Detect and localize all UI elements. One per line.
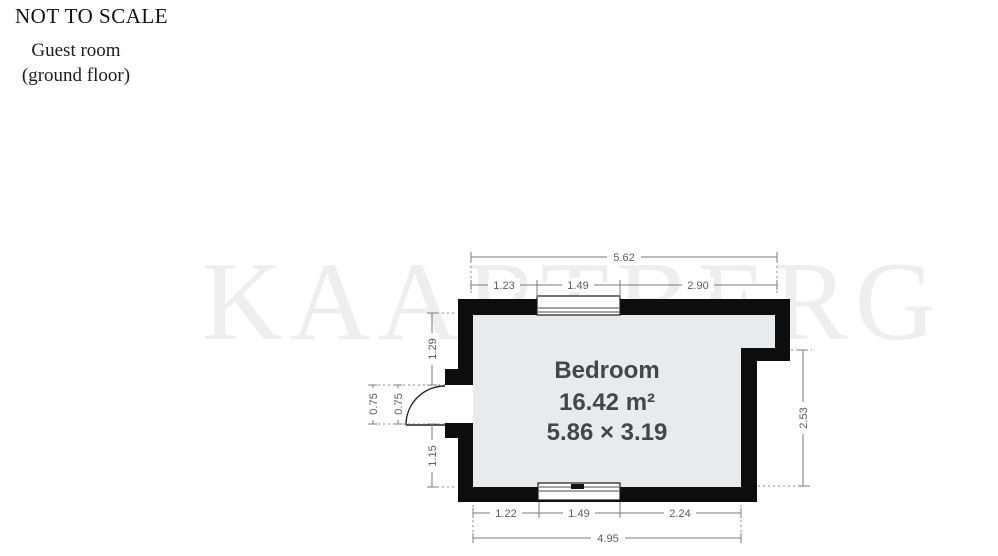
dim-label-top-seg2: 1.49 xyxy=(567,280,588,292)
dim-label-bottom-seg3: 2.24 xyxy=(669,508,690,520)
door xyxy=(406,386,445,425)
dim-label-bottom-seg1: 1.22 xyxy=(495,508,516,520)
dim-label-door-inner: 0.75 xyxy=(393,393,405,414)
dim-bottom-segments: 1.22 1.49 2.24 xyxy=(473,502,741,520)
right-wall-upper xyxy=(775,299,790,349)
dim-label-bottom-seg2: 1.49 xyxy=(568,508,589,520)
room-title: Guest room (ground floor) xyxy=(6,38,146,88)
dim-label-right-side: 2.53 xyxy=(798,407,810,428)
right-wall-lower xyxy=(741,348,757,502)
door-swing-arc xyxy=(406,386,445,425)
dim-label-bottom-total: 4.95 xyxy=(597,533,618,545)
door-jamb-lower xyxy=(445,423,473,438)
top-wall xyxy=(458,299,790,315)
bottom-window xyxy=(538,483,620,500)
dim-label-left-upper: 1.29 xyxy=(427,338,439,359)
dim-label-door-outer: 0.75 xyxy=(368,393,380,414)
room-name-label: Bedroom xyxy=(554,357,659,384)
dim-label-left-lower: 1.15 xyxy=(427,445,439,466)
room-area-label: 16.42 m² xyxy=(559,389,655,416)
floor-plan-drawing: 5.62 1.23 1.49 2.90 1.29 xyxy=(0,0,998,556)
left-wall-upper xyxy=(458,299,473,371)
dim-top-segments: 1.23 1.49 2.90 xyxy=(471,278,777,297)
dim-door-widths: 0.75 0.75 xyxy=(366,385,445,424)
door-jamb-upper xyxy=(445,369,473,385)
room-title-line2: (ground floor) xyxy=(22,65,130,86)
scale-note: NOT TO SCALE xyxy=(15,4,168,29)
dim-label-top-seg3: 2.90 xyxy=(687,280,708,292)
dim-label-top-total: 5.62 xyxy=(613,252,634,264)
dim-right-side: 2.53 xyxy=(758,350,812,486)
room-size-label: 5.86 × 3.19 xyxy=(547,419,668,446)
dim-label-top-seg1: 1.23 xyxy=(493,280,514,292)
window-handle xyxy=(571,484,584,489)
top-window xyxy=(537,296,620,315)
room-title-line1: Guest room xyxy=(31,40,120,61)
floor-plan-page: NOT TO SCALE Guest room (ground floor) K… xyxy=(0,0,998,556)
